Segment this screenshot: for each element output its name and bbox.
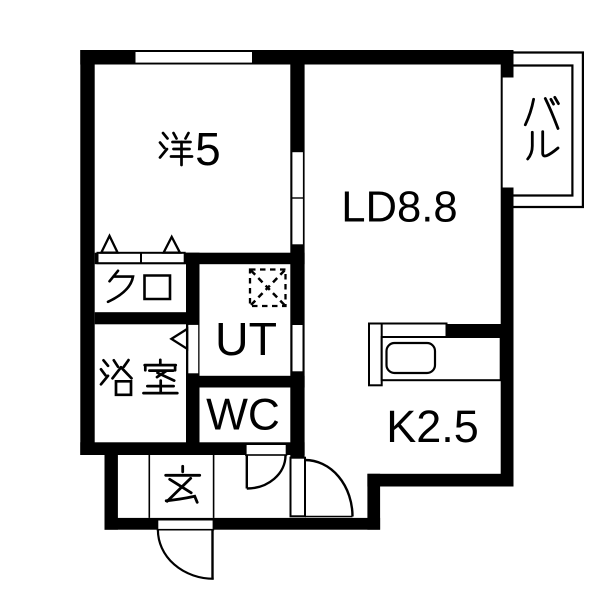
svg-text:LD8.8: LD8.8 [341, 183, 457, 231]
svg-text:WC: WC [206, 391, 280, 440]
svg-text:5: 5 [195, 123, 221, 175]
svg-text:K2.5: K2.5 [386, 401, 479, 452]
svg-text:UT: UT [215, 313, 277, 365]
